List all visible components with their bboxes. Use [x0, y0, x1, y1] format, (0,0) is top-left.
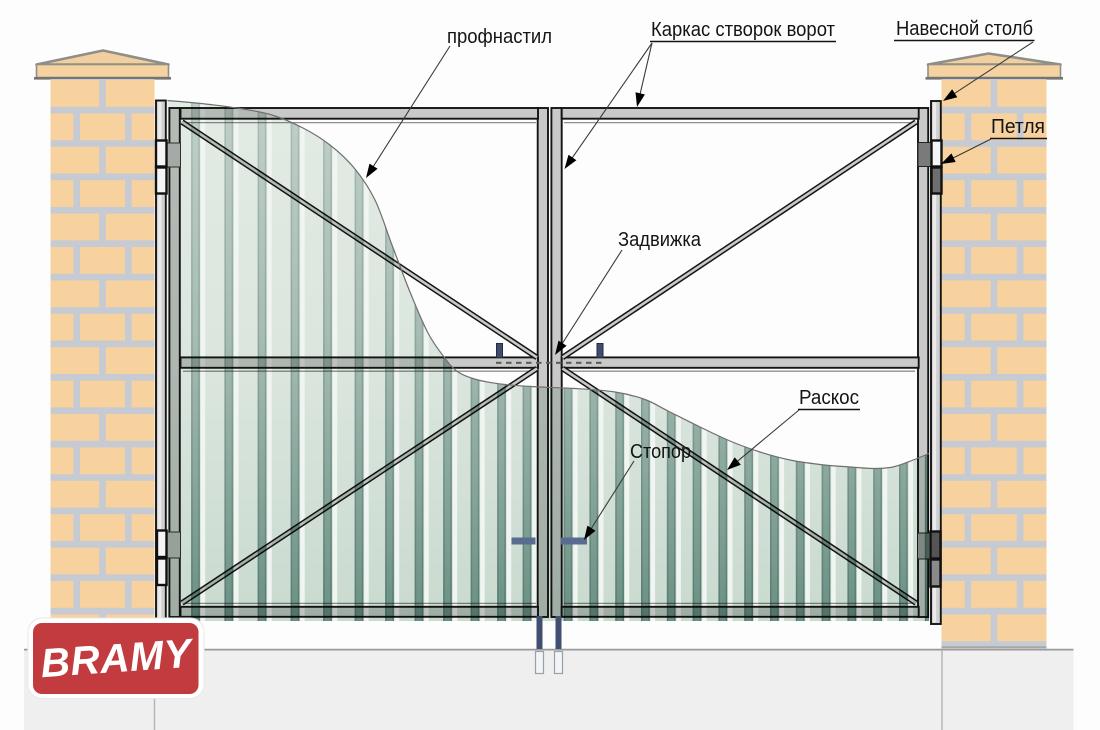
svg-text:Петля: Петля [991, 116, 1045, 138]
svg-text:Раскос: Раскос [799, 387, 859, 409]
svg-text:профнастил: профнастил [447, 26, 552, 48]
svg-text:Каркас створок ворот: Каркас створок ворот [651, 19, 835, 41]
svg-text:Навесной столб: Навесной столб [896, 18, 1033, 40]
svg-text:Стопор: Стопор [630, 441, 691, 463]
svg-text:Задвижка: Задвижка [618, 229, 702, 251]
